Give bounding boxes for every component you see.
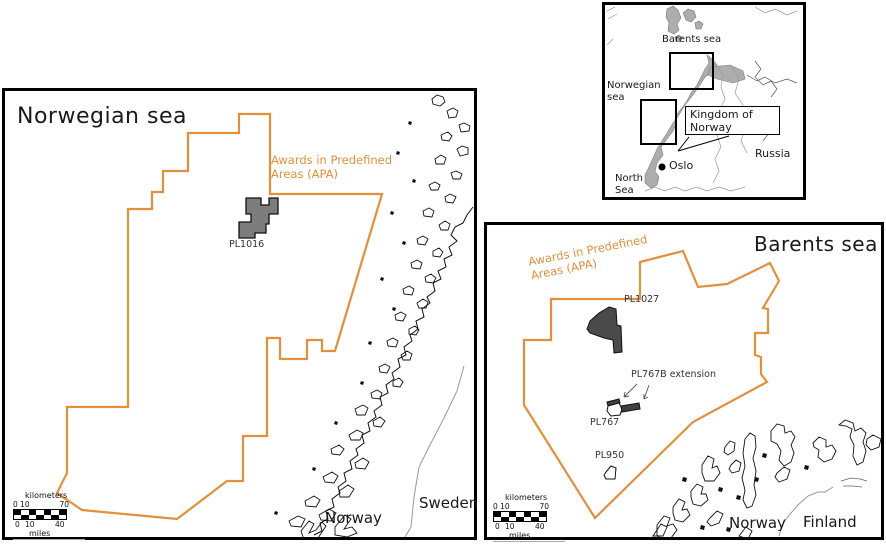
overview-label-oslo: Oslo	[669, 160, 693, 173]
license-label-pl950: PL950	[595, 451, 624, 462]
license-shape-pl1027	[587, 307, 622, 353]
scale-unit-km: kilometers	[25, 491, 93, 500]
kingdom-leader-lines	[678, 136, 729, 151]
scale-mi-40: 40	[535, 522, 545, 531]
figure-canvas: { "colors": { "apa_orange": "#E2903E", "…	[0, 0, 886, 545]
barents-extent-box	[669, 52, 714, 90]
apa-boundary-barents	[524, 251, 779, 518]
tana-river-lines	[841, 478, 867, 487]
scale-underline	[493, 541, 565, 542]
country-label-sweden: Sweden	[419, 495, 478, 512]
scale-mi-0: 0	[495, 522, 500, 531]
panel-title-norwegian-sea: Norwegian sea	[17, 104, 187, 129]
norwegian-sea-panel: Norwegian sea Awards in Predefined Areas…	[2, 88, 477, 540]
scale-bar-graphic	[13, 509, 67, 520]
scale-mi-10: 10	[25, 520, 35, 529]
country-label-norway: Norway	[729, 515, 786, 532]
mainland-coastline	[314, 207, 473, 535]
license-label-pl1027: PL1027	[624, 295, 659, 306]
scale-mi-40: 40	[55, 520, 65, 529]
scale-underline	[13, 539, 85, 540]
country-label-finland: Finland	[803, 514, 857, 531]
scale-mi-0: 0	[15, 520, 20, 529]
overview-label-russia: Russia	[755, 148, 790, 161]
pl767b-east-bar	[621, 403, 640, 412]
scale-mi-10: 10	[505, 522, 515, 531]
scale-km-right: 70	[539, 502, 549, 511]
scale-km-left: 0 10	[13, 500, 30, 509]
overview-label-north-sea: North Sea	[615, 173, 657, 196]
license-shape-pl767-group	[607, 399, 640, 416]
overview-label-barents-sea: Barents sea	[662, 34, 721, 46]
barents-sea-panel: Barents sea Awards in Predefined Areas (…	[484, 222, 884, 540]
license-label-pl1016: PL1016	[229, 240, 264, 251]
scale-bar-barents: kilometers 0 10 70 0 10 40 miles	[493, 493, 573, 542]
overview-label-norwegian-sea: Norwegian sea	[607, 80, 671, 103]
scale-km-right: 70	[59, 500, 69, 509]
scale-unit-miles: miles	[29, 529, 93, 538]
scale-bar-graphic	[493, 511, 547, 522]
oslo-dot	[659, 164, 666, 171]
license-label-pl767: PL767	[590, 418, 619, 429]
panel-title-barents-sea: Barents sea	[754, 233, 878, 256]
scale-unit-miles: miles	[509, 531, 573, 540]
country-label-norway: Norway	[325, 510, 382, 527]
kingdom-of-norway-box: Kingdom of Norway	[685, 106, 780, 135]
pl767b-arrows	[624, 384, 649, 399]
scale-bar-norwegian: kilometers 0 10 70 0 10 40 miles	[13, 491, 93, 540]
license-shape-pl1016	[239, 198, 278, 238]
license-shape-pl950	[604, 466, 616, 479]
scale-km-left: 0 10	[493, 502, 510, 511]
norwegian-extent-box	[640, 99, 677, 145]
overview-panel: Kingdom of Norway Barents sea Norwegian …	[602, 2, 806, 200]
license-label-pl767b: PL767B extension	[631, 370, 716, 381]
apa-label-norwegian: Awards in Predefined Areas (APA)	[271, 153, 423, 182]
scale-unit-km: kilometers	[505, 493, 573, 502]
